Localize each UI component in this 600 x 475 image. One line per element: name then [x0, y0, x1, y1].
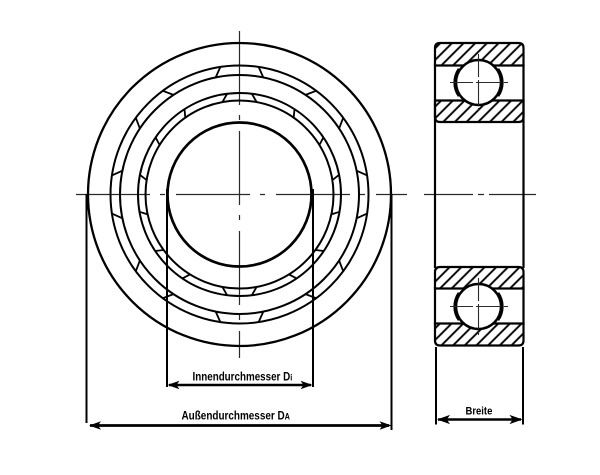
svg-text:Breite: Breite [466, 406, 493, 418]
svg-text:Außendurchmesser DA: Außendurchmesser DA [182, 410, 291, 423]
svg-text:Innendurchmesser Di: Innendurchmesser Di [193, 371, 293, 384]
